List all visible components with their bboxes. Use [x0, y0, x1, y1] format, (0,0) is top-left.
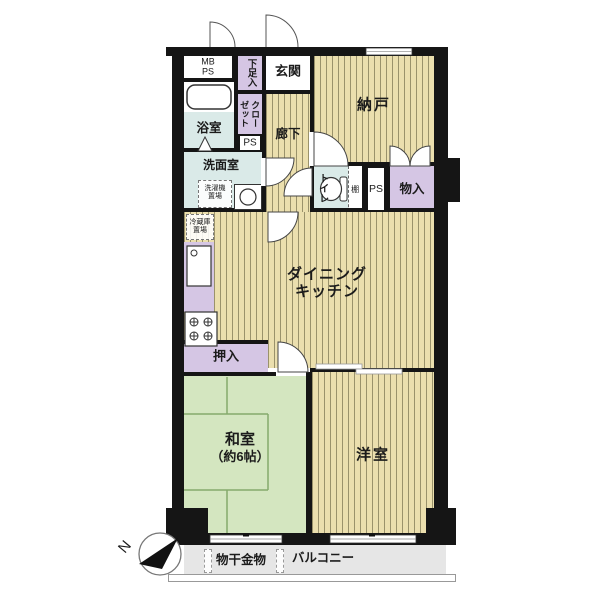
monoire-door-left-arc [390, 146, 410, 166]
balcony-label: バルコニー [292, 551, 354, 565]
monoire-door-right-arc [410, 146, 430, 166]
washroom-label: 洗面室 [203, 159, 239, 173]
compass-icon [139, 533, 181, 575]
storage-room-label: 納戸 [357, 96, 391, 113]
dk-washitsu-door-arc [278, 342, 308, 372]
nando-window [366, 48, 412, 55]
nando-door-arc [314, 132, 348, 166]
dk-western-sliding-door [316, 364, 402, 374]
stove-icon [185, 312, 217, 346]
bathroom-label: 浴室 [196, 121, 221, 135]
japanese-room-label: 和室（約6帖） [210, 431, 269, 465]
mb-ps-label: MBPS [201, 57, 215, 78]
closet-label-right: クロー [250, 101, 260, 128]
western-window [330, 534, 416, 543]
shelf-label: 棚 [350, 185, 359, 193]
storage-closet-label: 物入 [399, 182, 424, 196]
toilet-label: トイレ [316, 173, 328, 203]
washitsu-window [210, 534, 282, 543]
dk-door-arc [268, 212, 298, 242]
closet-label-left: ゼット [239, 101, 249, 128]
corridor-label: 廊下 [275, 127, 300, 141]
laundry-hardware-label: 物干金物 [216, 553, 266, 567]
entrance-label: 玄関 [275, 65, 301, 80]
fridge-area-label: 冷蔵庫置場 [190, 219, 211, 235]
bath-folding-door [198, 137, 212, 151]
futon-closet-label: 押入 [213, 350, 239, 365]
pipe-space-1-label: PS [243, 137, 256, 149]
washbasin-icon [240, 189, 256, 205]
shoe-cupboard-label: 下足入 [245, 59, 256, 88]
kitchen-sink-icon [187, 246, 211, 286]
washer-area-label: 洗濯機置場 [205, 185, 226, 201]
meterbox-door-arc [210, 22, 235, 47]
floor-plan: MBPS 下足入 玄関 納戸 浴室 クロー ゼット PS 廊下 洗面室 洗濯機置… [0, 0, 600, 600]
pipe-space-2-label: PS [369, 183, 383, 195]
bathtub-icon [187, 85, 231, 109]
dining-kitchen-label: ダイニングキッチン [287, 266, 367, 301]
entrance-door-arc [266, 15, 298, 47]
western-room-label: 洋室 [356, 446, 390, 463]
